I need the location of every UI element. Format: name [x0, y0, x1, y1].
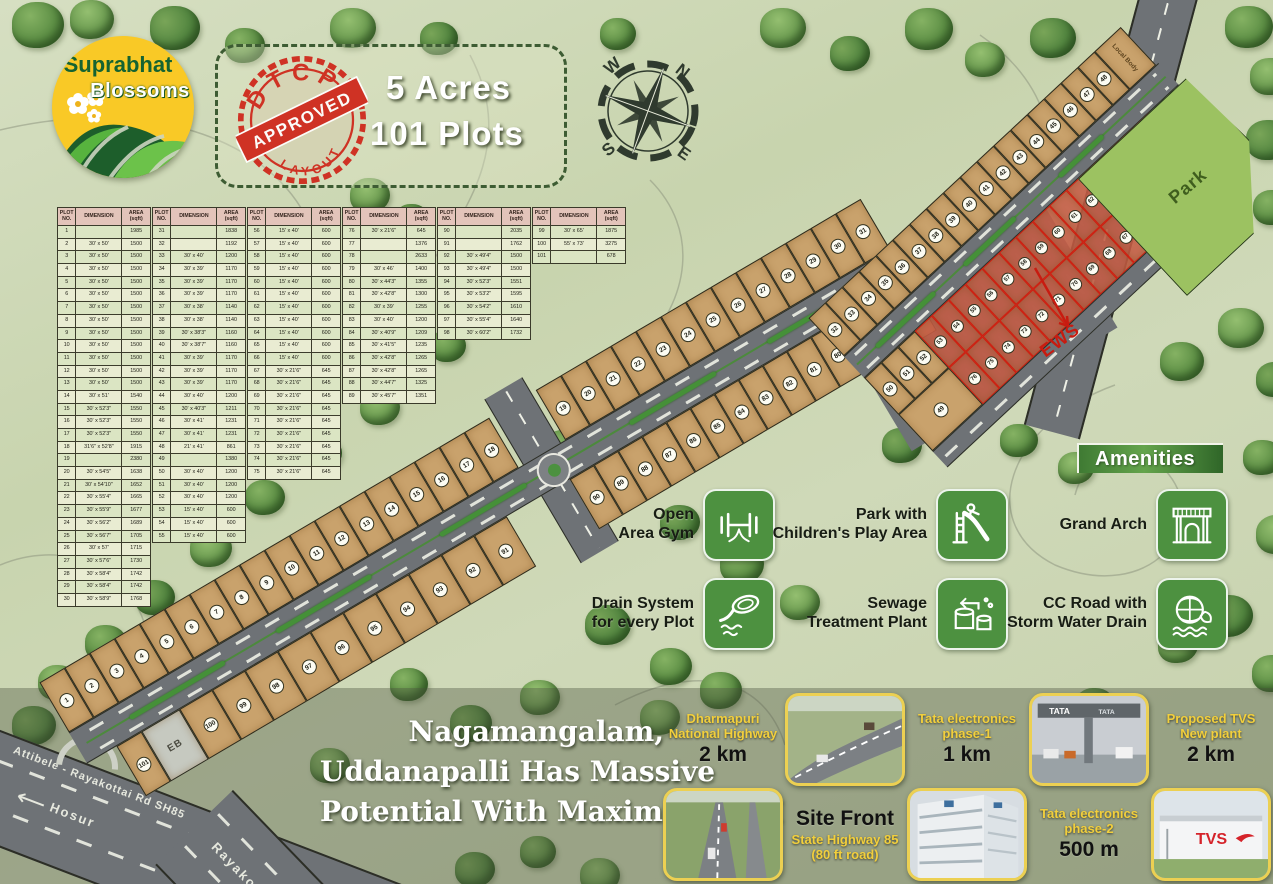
plot-number: 101: [133, 754, 154, 775]
plot-number: 25: [703, 309, 724, 330]
dimension-cell: 30' x 58'4": [76, 569, 122, 581]
plot-table-row: 6515' x 40'600: [248, 340, 340, 353]
area-cell: 1665: [122, 492, 150, 504]
dimension-cell: 30' x 41': [171, 429, 217, 441]
plot-table-row: 3930' x 38'3"1160: [153, 328, 245, 341]
amenity-item: CC Road withStorm Water Drain: [960, 578, 1228, 650]
marketing-tagline: Nagamangalam, Uddanapalli Has Massive Po…: [320, 712, 664, 831]
plot-table-row: 330' x 50'1500: [58, 251, 150, 264]
plot-no-cell: 34: [153, 264, 171, 276]
area-cell: 645: [312, 366, 340, 378]
area-cell: 1551: [502, 277, 530, 289]
plot-table-header-cell: AREA (sqft): [312, 208, 340, 225]
logo-name-line2: Blossoms: [86, 80, 194, 103]
dimension-cell: 30' x 40': [171, 492, 217, 504]
area-cell: 1211: [217, 404, 245, 416]
dimension-cell: 30' x 50': [76, 366, 122, 378]
location-name: DharmapuriNational Highway: [669, 712, 777, 742]
plot-no-cell: 92: [438, 251, 456, 263]
amenity-label-line: Park with: [773, 506, 927, 525]
plot-no-cell: 12: [58, 366, 76, 378]
plot-no-cell: 77: [343, 239, 361, 251]
plot-table-row: 5915' x 40'600: [248, 264, 340, 277]
plot-no-cell: 93: [438, 264, 456, 276]
plot-no-cell: 80: [343, 277, 361, 289]
grand-arch-icon: [1156, 489, 1228, 561]
plot-table-header-cell: PLOT NO.: [153, 208, 171, 225]
amenity-label-line: Area Gym: [618, 525, 694, 544]
plot-no-cell: 38: [153, 315, 171, 327]
plot-table-row: 1630' x 52'3"1550: [58, 416, 150, 429]
plot-number: 94: [397, 599, 418, 620]
plot-number: 85: [707, 416, 728, 437]
plot-table-header-cell: DIMENSION: [456, 208, 502, 225]
area-cell: 600: [312, 328, 340, 340]
dimension-cell: 30' x 51': [76, 391, 122, 403]
plot-no-cell: 99: [533, 226, 551, 238]
dimension-cell: 30' x 50': [76, 264, 122, 276]
area-cell: 3275: [597, 239, 625, 251]
dimension-cell: 30' x 40': [361, 315, 407, 327]
plot-table-header-cell: AREA (sqft): [502, 208, 530, 225]
plot-no-cell: 89: [343, 391, 361, 403]
dimension-cell: 30' x 41'5": [361, 340, 407, 352]
dimension-cell: 30' x 42'8": [361, 289, 407, 301]
plot-number: 84: [731, 402, 752, 423]
dimension-cell: 30' x 21'6": [266, 429, 312, 441]
cc-road-icon: [1156, 578, 1228, 650]
plot-number: 12: [331, 528, 352, 549]
plot-table-row: 7330' x 21'6"645: [248, 442, 340, 455]
area-cell: 1985: [122, 226, 150, 238]
plot-table-row: 2030' x 54'5"1638: [58, 467, 150, 480]
plot-no-cell: 98: [438, 328, 456, 340]
plot-table-row: 4430' x 40'1200: [153, 391, 245, 404]
dimension-cell: 15' x 40': [266, 315, 312, 327]
plot-number: 45: [1043, 115, 1064, 136]
area-cell: 1380: [217, 454, 245, 466]
dimension-cell: 30' x 65': [551, 226, 597, 238]
plot-number: 34: [858, 287, 879, 308]
area-cell: 600: [217, 518, 245, 530]
dimension-cell: [361, 239, 407, 251]
plot-number: 82: [779, 373, 800, 394]
dimension-cell: 30' x 50': [76, 277, 122, 289]
plot-table-row: 8930' x 45'7"1351: [343, 391, 435, 403]
plot-table-row: 8030' x 44'3"1355: [343, 277, 435, 290]
dimension-cell: [76, 454, 122, 466]
plot-table-row: 5030' x 40'1200: [153, 467, 245, 480]
area-cell: 1715: [122, 543, 150, 555]
plot-table-header-cell: DIMENSION: [361, 208, 407, 225]
plot-no-cell: 101: [533, 251, 551, 263]
plot-number: 4: [131, 646, 152, 667]
area-cell: 1500: [122, 340, 150, 352]
plot-table-header-cell: DIMENSION: [171, 208, 217, 225]
plot-table-row: 5815' x 40'600: [248, 251, 340, 264]
dimension-cell: 30' x 21'6": [266, 467, 312, 479]
plot-table-row: 4821' x 41'861: [153, 442, 245, 455]
plot-table-row: 6315' x 40'600: [248, 315, 340, 328]
plot-table-header-row: PLOT NO.DIMENSIONAREA (sqft): [438, 208, 530, 226]
dimension-cell: 30' x 56'7": [76, 531, 122, 543]
plot-table-header-cell: AREA (sqft): [407, 208, 435, 225]
plot-table-row: 9630' x 54'2"1610: [438, 302, 530, 315]
plot-number: 22: [628, 353, 649, 374]
plot-number: 81: [803, 359, 824, 380]
area-cell: 1170: [217, 353, 245, 365]
area-cell: 1170: [217, 366, 245, 378]
plot-table-row: 6415' x 40'600: [248, 328, 340, 341]
dimension-cell: 30' x 54'10": [76, 480, 122, 492]
dimension-cell: [551, 251, 597, 263]
plot-number: 32: [824, 319, 845, 340]
plot-table-header-row: PLOT NO.DIMENSIONAREA (sqft): [58, 208, 150, 226]
plot-number: 38: [925, 225, 946, 246]
plot-table-row: 530' x 50'1500: [58, 277, 150, 290]
plot-no-cell: 39: [153, 328, 171, 340]
dimension-cell: 30' x 55'9": [76, 505, 122, 517]
location-info-card: Tata electronicsphase-2500 m: [1029, 788, 1149, 881]
plot-no-cell: 47: [153, 429, 171, 441]
plot-no-cell: 36: [153, 289, 171, 301]
plot-number: 76: [965, 369, 983, 387]
dimension-cell: 30' x 44'7": [361, 378, 407, 390]
dimension-cell: 30' x 21'6": [266, 366, 312, 378]
state-highway-photo: [663, 788, 783, 881]
dimension-cell: 30' x 21'6": [266, 378, 312, 390]
plot-number: 40: [959, 193, 980, 214]
plot-no-cell: 44: [153, 391, 171, 403]
plot-no-cell: 65: [248, 340, 266, 352]
dimension-cell: 30' x 50': [76, 378, 122, 390]
plot-number: 51: [896, 362, 917, 383]
plot-number: 5: [156, 631, 177, 652]
dimension-cell: 30' x 42'8": [361, 366, 407, 378]
dimension-cell: 30' x 45'7": [361, 391, 407, 403]
dimension-cell: 30' x 50': [76, 353, 122, 365]
area-cell: 1550: [122, 416, 150, 428]
plot-table-row: 9930' x 65'1875: [533, 226, 625, 239]
plot-number: 68: [1100, 243, 1118, 261]
plot-table-row: 3730' x 38'1140: [153, 302, 245, 315]
area-cell: 1610: [502, 302, 530, 314]
area-cell: 600: [312, 289, 340, 301]
plot-number: 61: [1066, 207, 1084, 225]
plot-no-cell: 15: [58, 404, 76, 416]
dimension-cell: 30' x 58'4": [76, 581, 122, 593]
plot-table-row: 1230' x 50'1500: [58, 366, 150, 379]
plot-table-row: 2730' x 57'6"1730: [58, 556, 150, 569]
plot-number: 56: [982, 285, 1000, 303]
tagline-line3: Potential With Maximum ROI: [320, 792, 664, 832]
plot-table-block: PLOT NO.DIMENSIONAREA (sqft)5615' x 40'6…: [247, 207, 341, 480]
area-cell: 645: [312, 404, 340, 416]
amenity-label-line: Grand Arch: [1060, 516, 1147, 535]
plot-table-row: 7930' x 46'1400: [343, 264, 435, 277]
dimension-cell: [456, 239, 502, 251]
plot-table-row: 5230' x 40'1200: [153, 492, 245, 505]
plot-table-row: 2830' x 58'4"1742: [58, 569, 150, 582]
plot-table-row: 311838: [153, 226, 245, 239]
plot-number: 100: [200, 714, 221, 735]
area-cell: 600: [312, 226, 340, 238]
plot-table-row: 730' x 50'1500: [58, 302, 150, 315]
area-cell: 1160: [217, 328, 245, 340]
plot-no-cell: 61: [248, 289, 266, 301]
dimension-cell: 30' x 46': [361, 264, 407, 276]
plot-no-cell: 8: [58, 315, 76, 327]
area-cell: 1200: [217, 492, 245, 504]
plot-table-header-cell: DIMENSION: [551, 208, 597, 225]
dimension-cell: [76, 226, 122, 238]
plot-table-header-cell: DIMENSION: [266, 208, 312, 225]
plot-number: 7: [206, 602, 227, 623]
compass-e: E: [674, 142, 694, 164]
plot-no-cell: 18: [58, 442, 76, 454]
dimension-cell: 30' x 39': [171, 378, 217, 390]
plot-no-cell: 43: [153, 378, 171, 390]
plot-number: 28: [778, 265, 799, 286]
dimension-cell: 30' x 50': [76, 251, 122, 263]
plot-table-row: 1330' x 50'1500: [58, 378, 150, 391]
area-cell: 1500: [122, 264, 150, 276]
plot-no-cell: 51: [153, 480, 171, 492]
area-cell: 1376: [407, 239, 435, 251]
plot-number: 13: [356, 513, 377, 534]
plot-no-cell: 52: [153, 492, 171, 504]
plot-table-row: 4030' x 38'7"1160: [153, 340, 245, 353]
plot-no-cell: 71: [248, 416, 266, 428]
plot-no-cell: 59: [248, 264, 266, 276]
plot-table-row: 6215' x 40'600: [248, 302, 340, 315]
plot-number: 55: [965, 301, 983, 319]
dimension-cell: [171, 239, 217, 251]
plot-no-cell: 25: [58, 531, 76, 543]
compass-s: S: [598, 138, 619, 160]
dimension-cell: 30' x 58'9": [76, 594, 122, 606]
plot-number: 18: [481, 440, 502, 461]
plot-table-row: 1430' x 51'1540: [58, 391, 150, 404]
dimension-cell: 30' x 50': [76, 340, 122, 352]
plot-number: 1: [56, 690, 77, 711]
dimension-cell: 30' x 21'6": [361, 226, 407, 238]
plot-table-row: 5415' x 40'600: [153, 518, 245, 531]
amenity-item: OpenArea Gym: [545, 489, 775, 561]
dimension-cell: 30' x 39': [171, 264, 217, 276]
plot-no-cell: 35: [153, 277, 171, 289]
plot-table-header-cell: AREA (sqft): [217, 208, 245, 225]
plot-table-row: 630' x 50'1500: [58, 289, 150, 302]
plot-no-cell: 86: [343, 353, 361, 365]
area-cell: 645: [312, 454, 340, 466]
plot-no-cell: 6: [58, 289, 76, 301]
plot-number: 14: [381, 499, 402, 520]
plot-no-cell: 67: [248, 366, 266, 378]
plot-table-row: 8130' x 42'8"1300: [343, 289, 435, 302]
dimension-cell: 30' x 42'8": [361, 353, 407, 365]
dimension-cell: 30' x 39': [171, 277, 217, 289]
area-cell: 600: [312, 251, 340, 263]
plot-number: 50: [879, 378, 900, 399]
plot-table-header-cell: DIMENSION: [76, 208, 122, 225]
plot-number: 43: [1009, 146, 1030, 167]
area-cell: 1500: [122, 251, 150, 263]
area-cell: 1265: [407, 353, 435, 365]
amenity-label-line: Children's Play Area: [773, 525, 927, 544]
suprabhat-blossoms-logo: Suprabhat Blossoms: [52, 36, 194, 178]
plot-no-cell: 46: [153, 416, 171, 428]
plot-no-cell: 62: [248, 302, 266, 314]
plot-number: 3: [106, 660, 127, 681]
plot-table-row: 6015' x 40'600: [248, 277, 340, 290]
area-cell: 1140: [217, 302, 245, 314]
plot-table-row: 3630' x 39'1170: [153, 289, 245, 302]
tvs-plant-photo: TVS: [1151, 788, 1271, 881]
area-cell: 1838: [217, 226, 245, 238]
plot-no-cell: 91: [438, 239, 456, 251]
plot-table-row: 6830' x 21'6"645: [248, 378, 340, 391]
plot-no-cell: 31: [153, 226, 171, 238]
plot-table-row: 8830' x 44'7"1325: [343, 378, 435, 391]
dimension-cell: 15' x 40': [266, 264, 312, 276]
plot-no-cell: 22: [58, 492, 76, 504]
dimension-cell: 15' x 40': [171, 518, 217, 530]
area-cell: 1500: [122, 328, 150, 340]
area-cell: 1351: [407, 391, 435, 403]
area-cell: 1742: [122, 581, 150, 593]
location-name: Tata electronicsphase-1: [918, 712, 1016, 742]
dimension-cell: 30' x 40': [171, 251, 217, 263]
amenity-item: Grand Arch: [1000, 489, 1228, 561]
area-cell: 1742: [122, 569, 150, 581]
plot-no-cell: 7: [58, 302, 76, 314]
dimension-cell: 30' x 39': [171, 289, 217, 301]
area-cell: 1200: [217, 467, 245, 479]
plot-no-cell: 88: [343, 378, 361, 390]
dimension-cell: 15' x 40': [171, 505, 217, 517]
plot-number: 99: [233, 695, 254, 716]
area-cell: 1200: [217, 480, 245, 492]
dimension-cell: 30' x 57': [76, 543, 122, 555]
plot-table-row: 9430' x 52'3"1551: [438, 277, 530, 290]
plot-table-row: 230' x 50'1500: [58, 239, 150, 252]
amenity-item: Park withChildren's Play Area: [742, 489, 1008, 561]
area-cell: 1768: [122, 594, 150, 606]
plot-table-block: PLOT NO.DIMENSIONAREA (sqft)9930' x 65'1…: [532, 207, 626, 264]
dimension-cell: 55' x 73': [551, 239, 597, 251]
dimension-cell: 30' x 39': [171, 353, 217, 365]
plot-no-cell: 82: [343, 302, 361, 314]
area-cell: 1500: [122, 366, 150, 378]
area-cell: 861: [217, 442, 245, 454]
plot-table-row: 3430' x 39'1170: [153, 264, 245, 277]
plot-table-row: 2330' x 55'9"1677: [58, 505, 150, 518]
amenity-label: OpenArea Gym: [618, 506, 694, 544]
plot-table-row: 491380: [153, 454, 245, 467]
amenity-label-line: for every Plot: [592, 614, 694, 633]
dimension-cell: 30' x 39': [171, 366, 217, 378]
tagline-line2: Uddanapalli Has Massive: [320, 752, 664, 792]
area-cell: 1231: [217, 429, 245, 441]
area-cell: 1550: [122, 404, 150, 416]
area-cell: 645: [312, 442, 340, 454]
dimension-cell: 30' x 55'4": [456, 315, 502, 327]
plot-count-text: 101 Plots: [370, 115, 524, 153]
plot-no-cell: 4: [58, 264, 76, 276]
plot-no-cell: 96: [438, 302, 456, 314]
dimension-cell: 30' x 40': [171, 391, 217, 403]
plot-table-row: 2530' x 56'7"1705: [58, 531, 150, 544]
plot-table-row: 9830' x 60'2"1732: [438, 328, 530, 340]
plot-table-row: 2430' x 56'2"1689: [58, 518, 150, 531]
area-cell: 600: [217, 531, 245, 543]
plot-no-cell: 21: [58, 480, 76, 492]
distance-value: 500 m: [1059, 838, 1119, 862]
plot-no-cell: 13: [58, 378, 76, 390]
plot-table-row: 4730' x 41'1231: [153, 429, 245, 442]
plot-no-cell: 56: [248, 226, 266, 238]
plot-number: 33: [841, 303, 862, 324]
left-arrow-icon: [11, 789, 46, 811]
plot-table-row: 4630' x 41'1231: [153, 416, 245, 429]
plot-table-row: 6615' x 40'600: [248, 353, 340, 366]
eb-label: EB: [165, 737, 184, 755]
plot-number: 24: [678, 324, 699, 345]
dimension-cell: [456, 226, 502, 238]
area-cell: 1638: [122, 467, 150, 479]
area-cell: 1500: [122, 289, 150, 301]
area-cell: 1255: [407, 302, 435, 314]
plot-table-row: 782633: [343, 251, 435, 264]
plot-no-cell: 14: [58, 391, 76, 403]
area-cell: 1730: [122, 556, 150, 568]
compass-n: N: [672, 60, 693, 83]
area-cell: 1689: [122, 518, 150, 530]
dimension-cell: 15' x 40': [266, 239, 312, 251]
amenity-label: Park withChildren's Play Area: [773, 506, 927, 544]
area-cell: 1500: [122, 277, 150, 289]
plot-table-row: 6730' x 21'6"645: [248, 366, 340, 379]
plot-no-cell: 9: [58, 328, 76, 340]
plot-number: 17: [456, 454, 477, 475]
plot-number: 95: [364, 618, 385, 639]
distance-value: 2 km: [1187, 743, 1235, 767]
dimension-cell: 30' x 56'2": [76, 518, 122, 530]
dimension-cell: 30' x 52'3": [76, 404, 122, 416]
dimension-cell: 30' x 54'2": [456, 302, 502, 314]
plot-table-row: 6115' x 40'600: [248, 289, 340, 302]
plot-table-row: 5315' x 40'600: [153, 505, 245, 518]
plot-table-row: 5615' x 40'600: [248, 226, 340, 239]
playground-slide-icon: [936, 489, 1008, 561]
plot-number: 8: [231, 587, 252, 608]
dimension-cell: 15' x 40': [266, 226, 312, 238]
plot-table-row: 9530' x 53'2"1595: [438, 289, 530, 302]
plot-table-row: 9730' x 55'4"1640: [438, 315, 530, 328]
plot-table-row: 3530' x 39'1170: [153, 277, 245, 290]
plot-number: 30: [828, 236, 849, 257]
area-cell: 1170: [217, 289, 245, 301]
plot-number: 87: [659, 444, 680, 465]
area-cell: 600: [312, 264, 340, 276]
plot-table-row: 1130' x 50'1500: [58, 353, 150, 366]
plot-table-block: PLOT NO.DIMENSIONAREA (sqft)902035911762…: [437, 207, 531, 340]
plot-table-row: 192380: [58, 454, 150, 467]
plot-number: 37: [908, 240, 929, 261]
dimension-cell: 15' x 40': [266, 251, 312, 263]
location-highlights: DharmapuriNational Highway2 kmTata elect…: [663, 693, 1271, 881]
